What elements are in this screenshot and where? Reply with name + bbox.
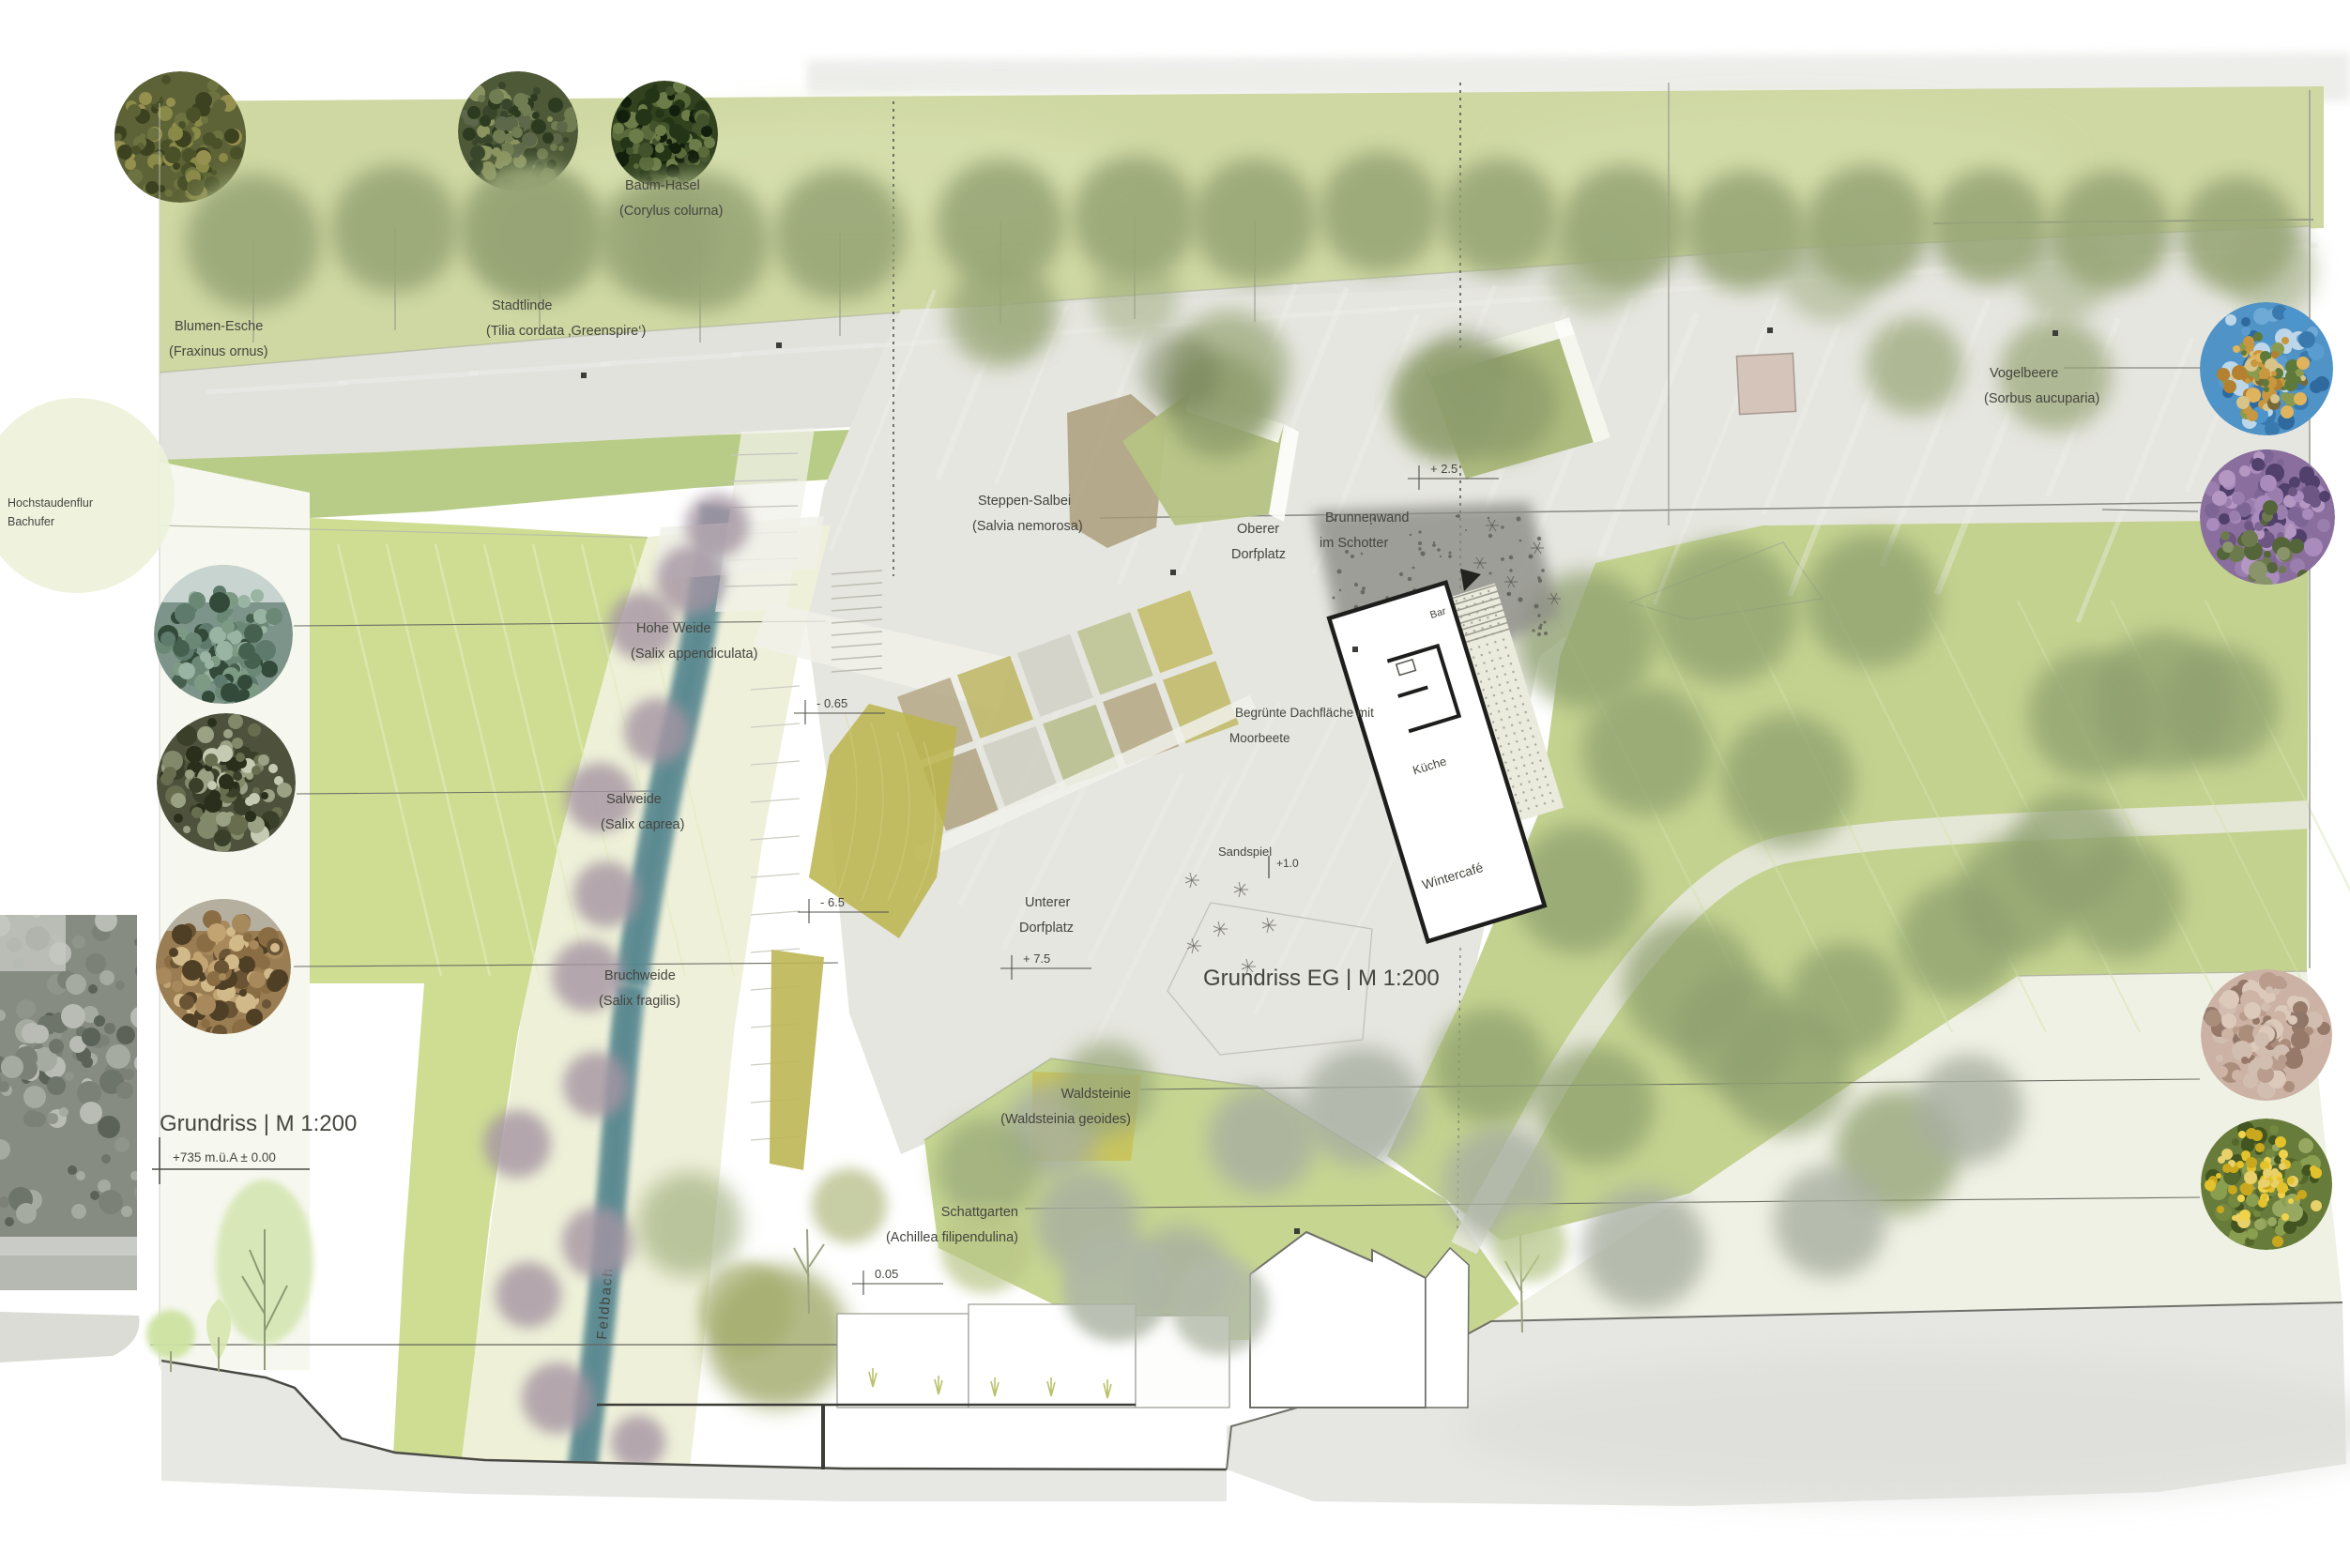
svg-text:Sandspiel: Sandspiel — [1218, 845, 1272, 859]
svg-text:Begrünte Dachfläche mit: Begrünte Dachfläche mit — [1235, 706, 1374, 720]
svg-text:(Waldsteinia geoides): (Waldsteinia geoides) — [1000, 1112, 1131, 1127]
svg-text:Bachufer: Bachufer — [8, 515, 54, 528]
svg-text:Vogelbeere: Vogelbeere — [1990, 366, 2058, 381]
svg-text:Brunnenwand: Brunnenwand — [1325, 510, 1410, 525]
svg-text:Stadtlinde: Stadtlinde — [492, 298, 553, 313]
svg-text:+1.0: +1.0 — [1276, 857, 1299, 870]
svg-text:Bruchweide: Bruchweide — [604, 968, 676, 983]
svg-text:+735 m.ü.A ± 0.00: +735 m.ü.A ± 0.00 — [173, 1150, 276, 1165]
svg-text:(Salix fragilis): (Salix fragilis) — [599, 994, 680, 1009]
svg-text:0.05: 0.05 — [875, 1267, 898, 1281]
svg-text:Hohe Weide: Hohe Weide — [636, 621, 711, 636]
svg-text:(Corylus colurna): (Corylus colurna) — [619, 204, 723, 219]
svg-text:- 6.5: - 6.5 — [820, 895, 845, 909]
svg-text:Waldsteinie: Waldsteinie — [1061, 1087, 1131, 1102]
svg-text:Steppen-Salbei: Steppen-Salbei — [978, 494, 1071, 509]
svg-text:(Salvia nemorosa): (Salvia nemorosa) — [972, 519, 1083, 534]
svg-text:(Achillea filipendulina): (Achillea filipendulina) — [886, 1230, 1018, 1245]
svg-text:Dorfplatz: Dorfplatz — [1019, 921, 1074, 936]
svg-text:(Salix appendiculata): (Salix appendiculata) — [631, 647, 757, 662]
svg-text:Unterer: Unterer — [1025, 895, 1071, 910]
svg-text:Blumen-Esche: Blumen-Esche — [175, 319, 263, 334]
svg-text:(Fraxinus ornus): (Fraxinus ornus) — [169, 344, 268, 359]
svg-text:Grundriss | M 1:200: Grundriss | M 1:200 — [160, 1111, 357, 1136]
svg-text:Schattgarten: Schattgarten — [941, 1205, 1018, 1220]
svg-text:Baum-Hasel: Baum-Hasel — [625, 178, 700, 193]
svg-text:(Sorbus aucuparia): (Sorbus aucuparia) — [1984, 391, 2099, 406]
svg-text:Oberer: Oberer — [1237, 522, 1279, 537]
svg-text:(Salix caprea): (Salix caprea) — [601, 817, 684, 832]
svg-text:Dorfplatz: Dorfplatz — [1231, 547, 1286, 562]
svg-text:Grundriss EG | M 1:200: Grundriss EG | M 1:200 — [1203, 966, 1440, 991]
svg-text:Hochstaudenflur: Hochstaudenflur — [8, 496, 93, 510]
svg-text:Salweide: Salweide — [606, 792, 662, 807]
svg-text:- 0.65: - 0.65 — [816, 696, 847, 710]
svg-text:im Schotter: im Schotter — [1320, 536, 1388, 551]
svg-text:+ 7.5: + 7.5 — [1023, 951, 1050, 966]
svg-text:+ 2.5: + 2.5 — [1430, 462, 1457, 476]
svg-text:Moorbeete: Moorbeete — [1229, 731, 1290, 745]
svg-text:(Tilia cordata ‚Greenspire‘): (Tilia cordata ‚Greenspire‘) — [486, 324, 646, 339]
